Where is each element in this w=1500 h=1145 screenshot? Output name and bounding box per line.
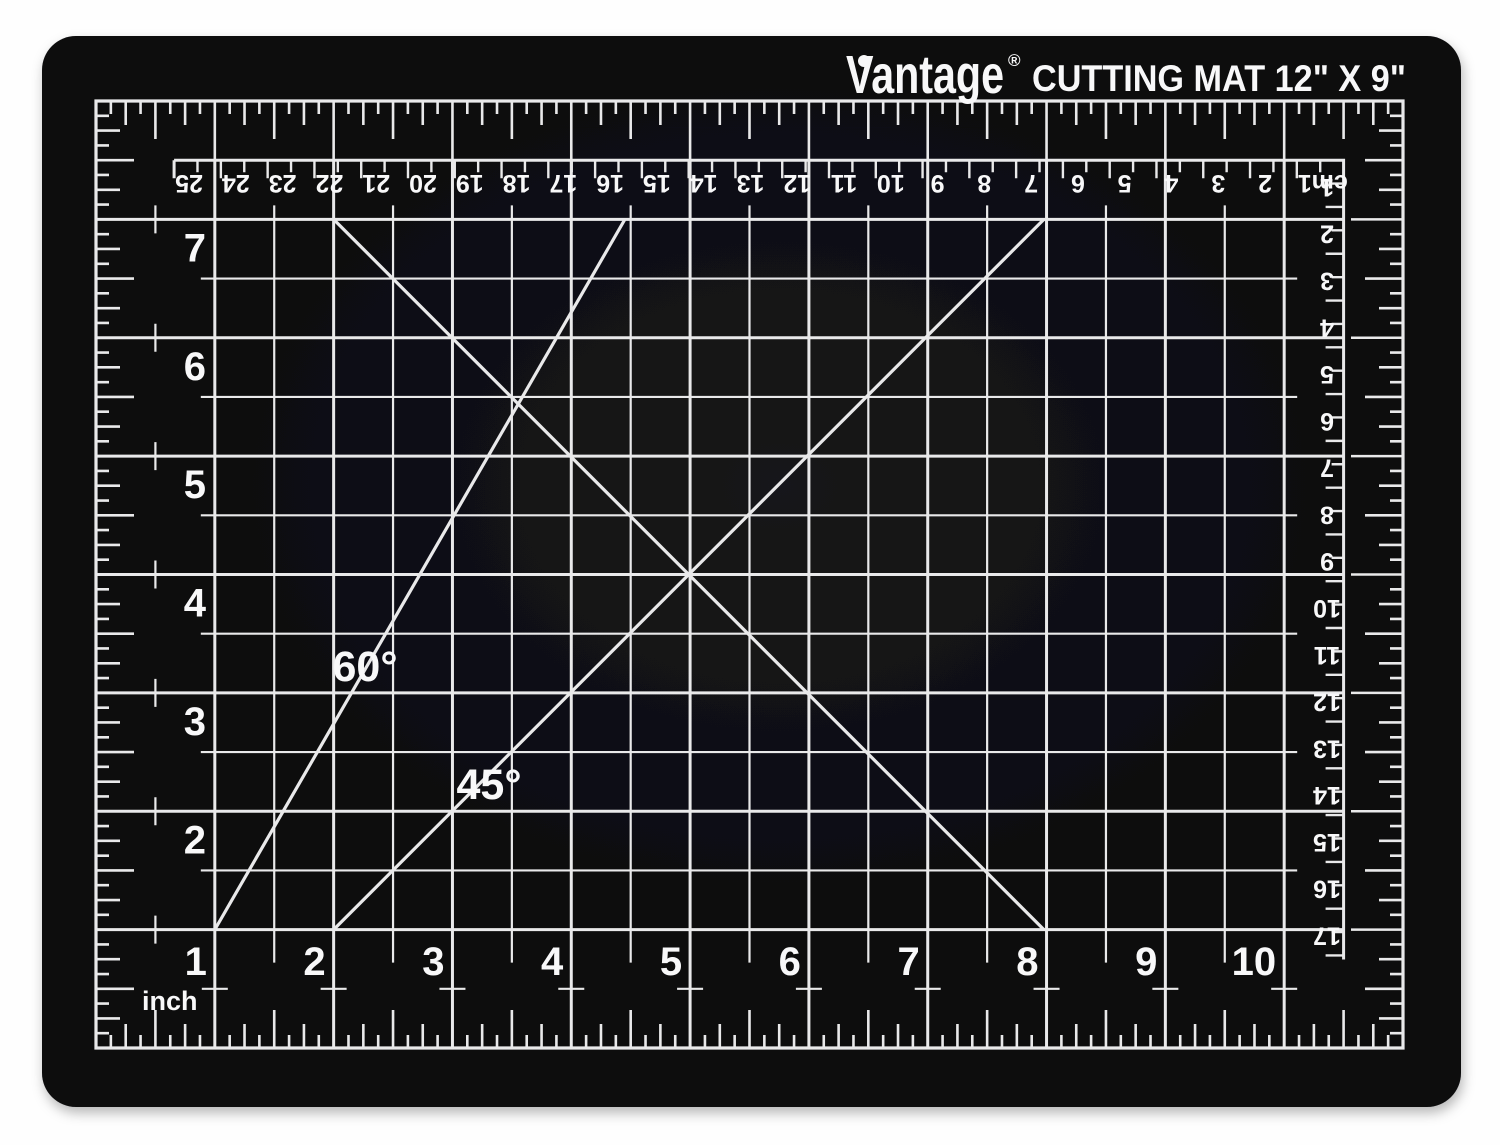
- top-cm-number: 5: [1118, 169, 1132, 197]
- bottom-inch-number: 9: [1135, 940, 1157, 984]
- top-cm-number: 8: [977, 169, 991, 197]
- right-cm-number: 4: [1320, 313, 1334, 341]
- bottom-inch-number: 2: [303, 940, 325, 984]
- right-cm-number: 5: [1320, 360, 1334, 388]
- top-cm-number: 16: [596, 169, 624, 197]
- top-cm-number: 19: [456, 169, 484, 197]
- bottom-inch-number: 5: [660, 940, 682, 984]
- right-cm-number: 14: [1313, 781, 1341, 809]
- right-cm-number: 13: [1313, 734, 1341, 762]
- top-cm-number: 12: [783, 169, 811, 197]
- top-cm-number: 14: [690, 169, 718, 197]
- bottom-inch-number: 10: [1232, 940, 1277, 984]
- left-inch-number: 6: [184, 345, 206, 389]
- bottom-inch-number: 1: [185, 940, 207, 984]
- top-cm-number: 22: [316, 169, 344, 197]
- right-cm-number: 17: [1313, 921, 1341, 949]
- top-cm-number: 7: [1024, 169, 1038, 197]
- right-cm-number: 9: [1320, 547, 1334, 575]
- right-cm-number: 11: [1314, 641, 1341, 669]
- right-cm-number: 2: [1320, 220, 1334, 248]
- top-cm-number: 18: [503, 169, 531, 197]
- inch-unit-label: inch: [142, 986, 198, 1016]
- right-cm-number: 8: [1320, 500, 1334, 528]
- top-cm-number: 3: [1211, 169, 1225, 197]
- bottom-inch-number: 6: [779, 940, 801, 984]
- angle-60-label: 60°: [332, 643, 397, 691]
- top-cm-number: 25: [175, 169, 203, 197]
- top-cm-number: 11: [831, 169, 858, 197]
- top-cm-number: 2: [1258, 169, 1272, 197]
- top-cm-number: 24: [222, 169, 250, 197]
- top-cm-number: 4: [1164, 169, 1178, 197]
- top-cm-number: 9: [931, 169, 945, 197]
- top-cm-number: 6: [1071, 169, 1085, 197]
- top-cm-number: 13: [737, 169, 765, 197]
- right-cm-number: 15: [1313, 828, 1341, 856]
- brand-logo-text: Vantage: [846, 45, 1004, 105]
- product-title: CUTTING MAT 12" X 9": [1032, 58, 1406, 99]
- right-cm-number: 6: [1320, 407, 1334, 435]
- left-inch-number: 7: [184, 226, 206, 270]
- left-inch-number: 2: [184, 818, 206, 862]
- right-cm-number: 7: [1320, 454, 1334, 482]
- bottom-inch-number: 7: [897, 940, 919, 984]
- top-cm-number: 15: [643, 169, 671, 197]
- bottom-inch-number: 4: [541, 940, 564, 984]
- product-photo: cm12345678910111213141516171819202122232…: [0, 0, 1500, 1145]
- right-cm-number: 1: [1320, 173, 1334, 201]
- right-cm-number: 10: [1313, 594, 1341, 622]
- left-inch-number: 5: [184, 463, 206, 507]
- right-cm-number: 3: [1320, 267, 1334, 295]
- registered-mark: ®: [1008, 51, 1021, 70]
- left-inch-number: 4: [184, 582, 207, 626]
- top-cm-number: 17: [549, 169, 577, 197]
- top-cm-number: 20: [409, 169, 437, 197]
- bottom-inch-number: 3: [422, 940, 444, 984]
- top-cm-number: 10: [877, 169, 905, 197]
- top-cm-number: 23: [269, 169, 297, 197]
- right-cm-number: 16: [1313, 875, 1341, 903]
- cutting-mat: cm12345678910111213141516171819202122232…: [0, 0, 1500, 1145]
- right-cm-number: 12: [1313, 688, 1341, 716]
- bottom-inch-number: 8: [1016, 940, 1038, 984]
- top-cm-number: 21: [362, 169, 390, 197]
- left-inch-number: 3: [184, 700, 206, 744]
- angle-45-label: 45°: [456, 761, 521, 809]
